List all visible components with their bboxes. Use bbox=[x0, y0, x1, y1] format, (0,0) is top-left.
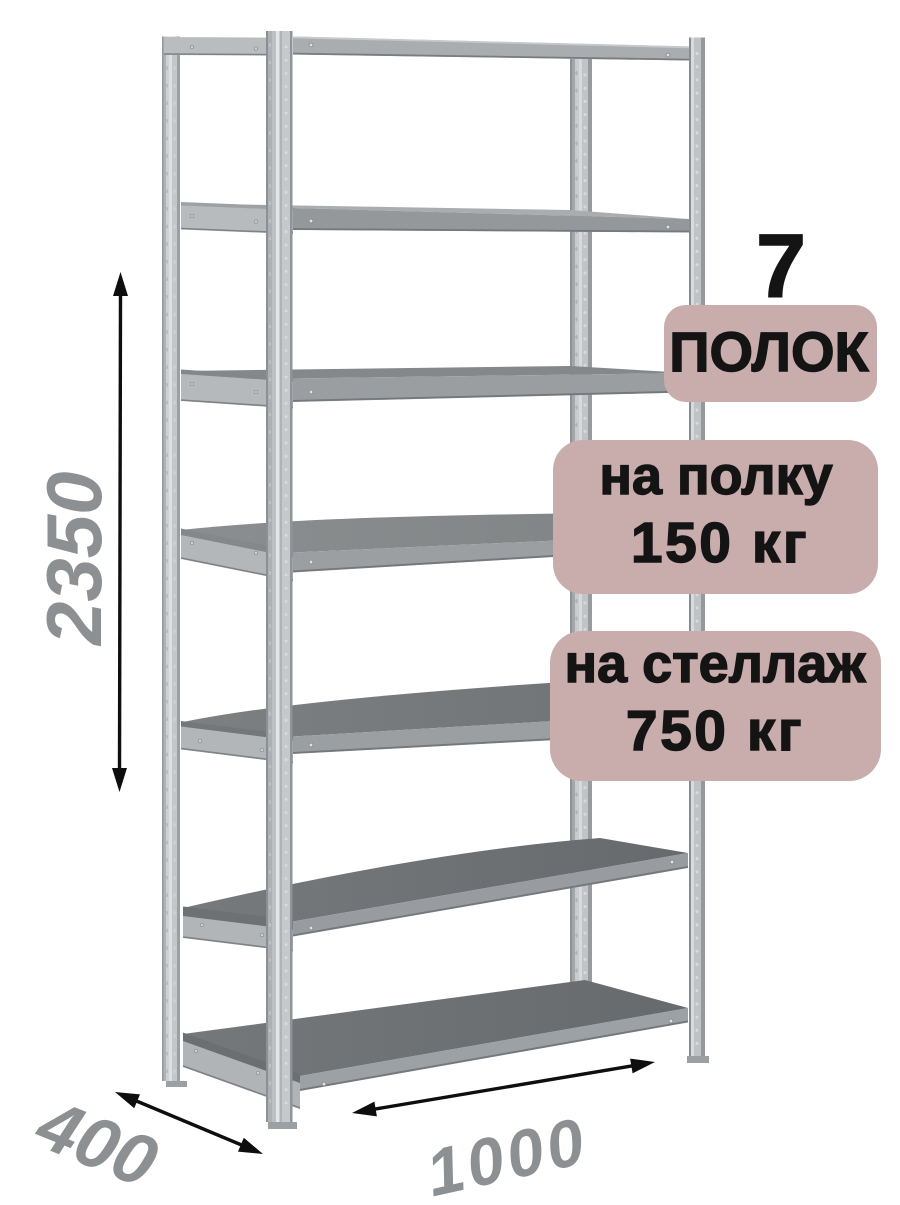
svg-text:2350: 2350 bbox=[30, 471, 118, 647]
svg-text:на полку: на полку bbox=[599, 446, 832, 506]
svg-text:7: 7 bbox=[756, 217, 806, 317]
svg-text:750 кг: 750 кг bbox=[626, 699, 804, 763]
svg-text:150 кг: 150 кг bbox=[631, 511, 809, 575]
svg-text:на стеллаж: на стеллаж bbox=[564, 634, 866, 694]
svg-text:ПОЛОК: ПОЛОК bbox=[669, 320, 869, 383]
